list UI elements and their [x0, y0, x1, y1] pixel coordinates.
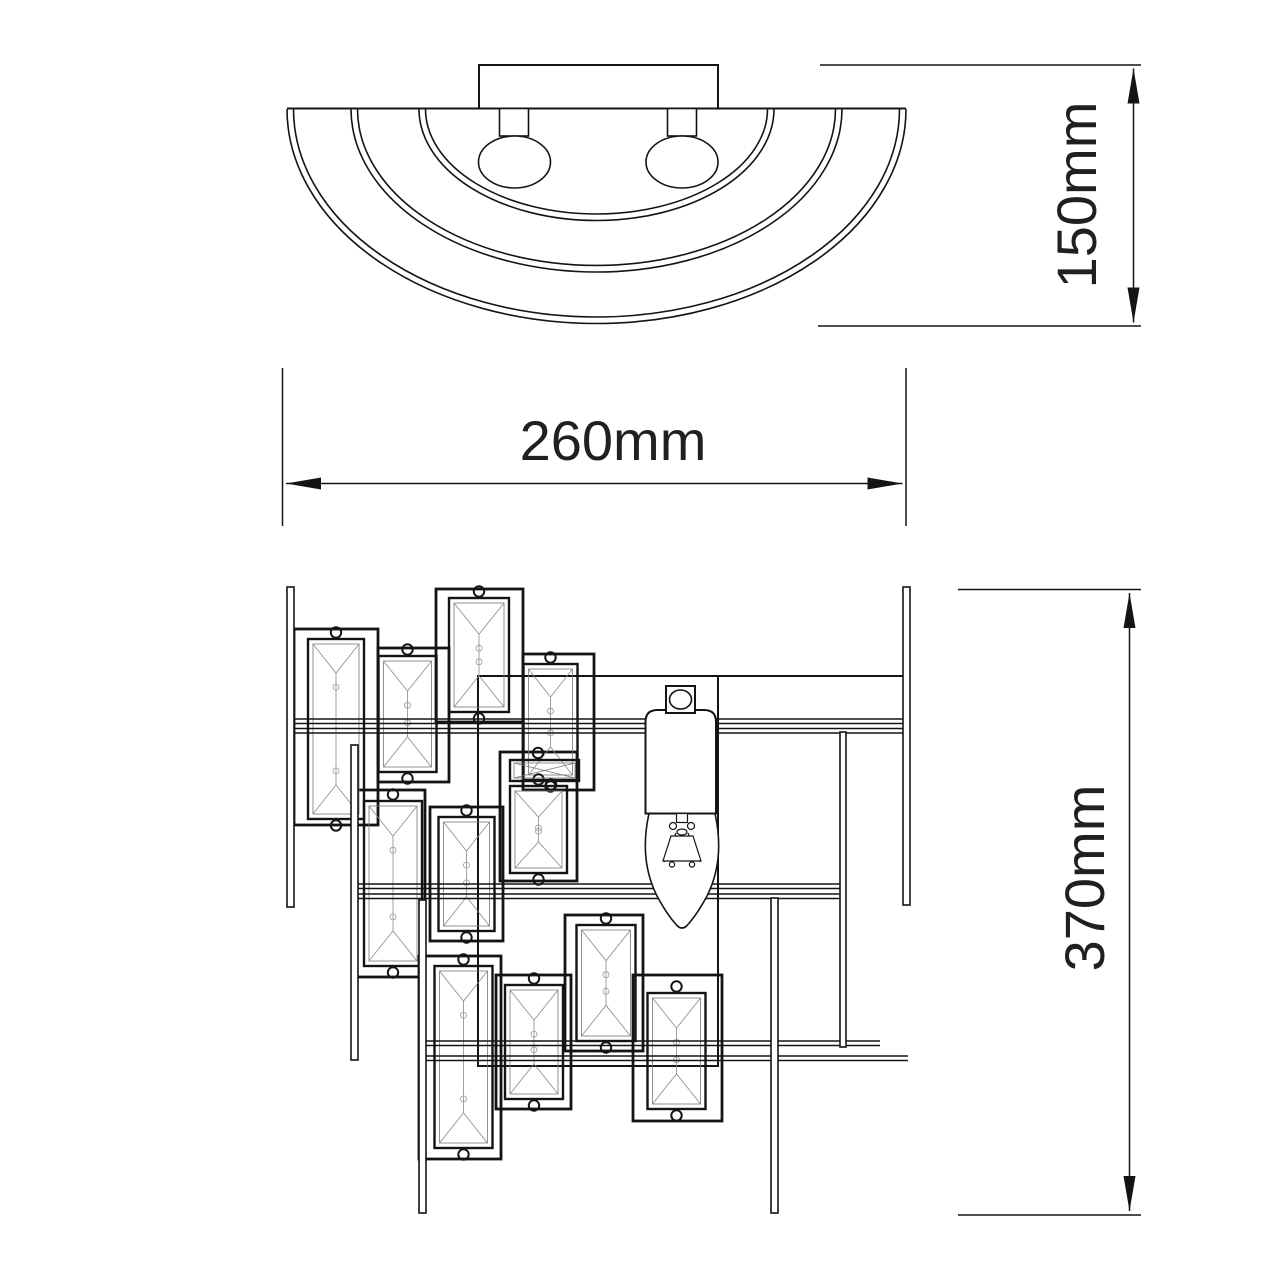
dimension-drop: 370mm: [958, 590, 1141, 1216]
mount-hole: [671, 1110, 681, 1120]
dimension-height: 150mm: [818, 65, 1141, 326]
arrowhead-up: [1128, 69, 1140, 104]
middle-arc: [351, 109, 842, 272]
mount-hole: [402, 644, 412, 654]
crystal-facet-lines: [510, 990, 558, 1094]
lamp-dimension-drawing: 260mm 150mm 370mm: [0, 0, 1280, 1281]
dimension-width: 260mm: [283, 368, 907, 526]
mount-hole: [671, 981, 681, 991]
outer-arc: [287, 109, 906, 324]
crystal-prism: [577, 913, 636, 1052]
crystal-prism: [505, 973, 563, 1110]
outer-arc-inner-line: [294, 109, 900, 317]
crystal-prism: [379, 644, 437, 783]
vertical-rod: [903, 587, 910, 905]
crystal-facet-lines: [515, 791, 562, 868]
filament-pin: [677, 814, 688, 823]
arrowhead-down: [1128, 288, 1140, 323]
crystal-prism: [648, 981, 706, 1120]
holder-stem: [500, 109, 529, 137]
crystal-prism: [435, 954, 493, 1159]
crystal-facet-lines: [653, 998, 701, 1104]
lamp-holders: [479, 109, 719, 189]
vertical-rod: [840, 732, 846, 1047]
canopy-plate: [479, 65, 718, 109]
holder-socket: [479, 136, 551, 188]
vertical-rod: [419, 900, 426, 1213]
arrowhead-down: [1124, 1176, 1136, 1211]
vertical-rod: [771, 898, 778, 1213]
crystal-prisms: [308, 586, 706, 1159]
holder-socket: [646, 136, 718, 188]
arrowhead-right: [868, 478, 903, 490]
technical-drawing-page: 260mm 150mm 370mm: [0, 0, 1280, 1281]
vertical-rods: [287, 587, 910, 1213]
inner-arc: [419, 109, 774, 221]
crystal-facet-lines: [444, 822, 490, 926]
mount-hole: [533, 874, 543, 884]
dimension-height-label: 150mm: [1045, 102, 1108, 289]
vertical-rod: [351, 745, 358, 1060]
dimension-drop-label: 370mm: [1053, 785, 1116, 972]
crystal-prism: [524, 652, 578, 791]
crystal-prism: [510, 774, 567, 884]
diffuser-arcs: [287, 109, 906, 324]
top-view: [287, 65, 906, 324]
crystal-facet-lines: [384, 661, 432, 767]
dimension-width-label: 260mm: [520, 409, 707, 472]
support-bars: [294, 719, 908, 1061]
front-view: [287, 586, 910, 1213]
crystal-prism: [439, 805, 495, 942]
holder-stem: [668, 109, 697, 137]
crystal-facet-lines: [440, 971, 488, 1143]
crystal-facet-lines: [582, 930, 631, 1036]
backplate-step-outline: [419, 956, 501, 1159]
arrowhead-left: [286, 478, 321, 490]
vertical-rod: [287, 587, 294, 907]
backplate-step-outline: [523, 654, 594, 790]
socket-body: [646, 710, 717, 814]
backplate-step-outline: [500, 752, 577, 881]
backplate-step-outline: [496, 975, 571, 1109]
arrowhead-up: [1124, 593, 1136, 628]
candle-bulb: [645, 814, 718, 929]
